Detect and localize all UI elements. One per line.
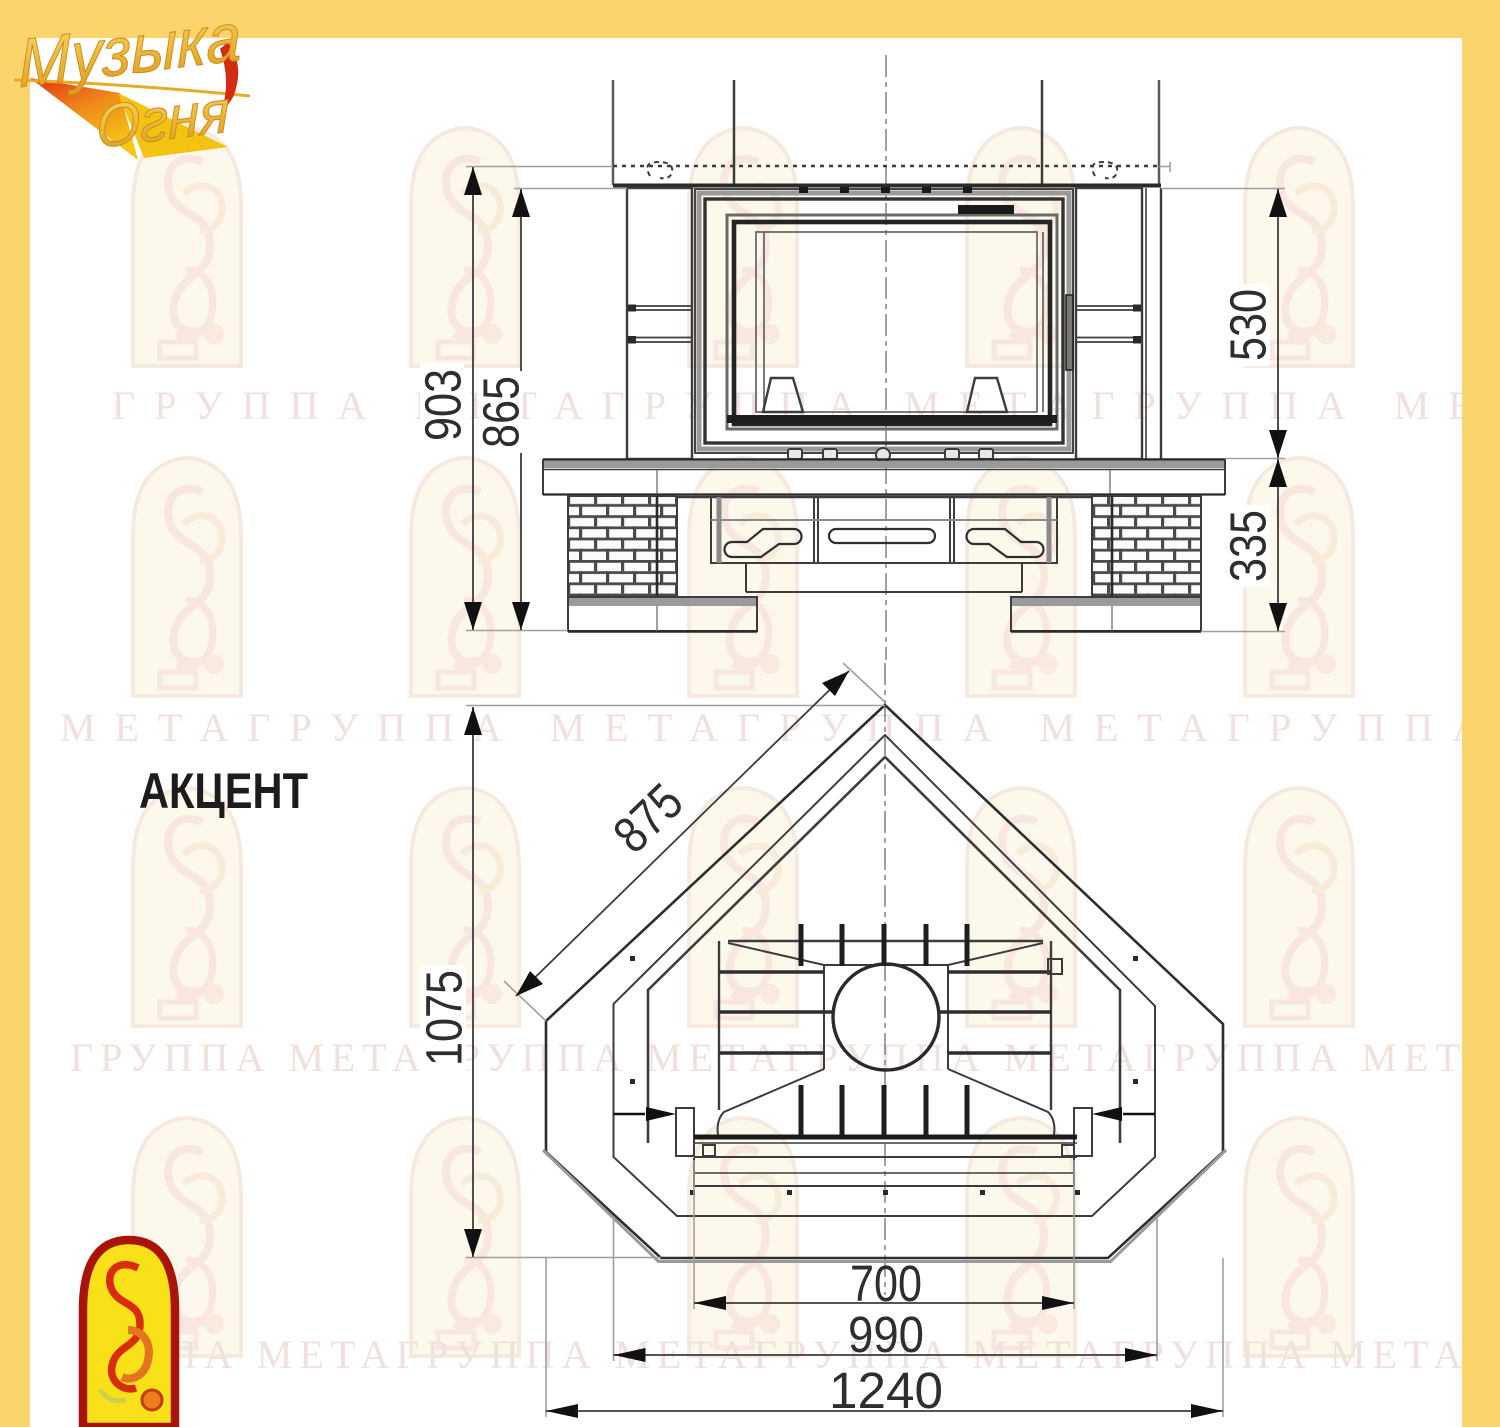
svg-text:МЕТАГРУППА МЕТАГРУППА МЕТАГРУП: МЕТАГРУППА МЕТАГРУППА МЕТАГРУППА [60,705,1500,750]
svg-text:903: 903 [415,369,472,441]
svg-text:700: 700 [850,1255,922,1312]
svg-text:865: 865 [473,376,530,448]
svg-text:1075: 1075 [416,970,473,1066]
svg-text:530: 530 [1220,289,1277,361]
svg-text:335: 335 [1220,510,1277,582]
svg-text:ГРУППА МЕТАГРУППА МЕТАГРУППА М: ГРУППА МЕТАГРУППА МЕТАГРУППА МЕТАГРУППА … [70,1035,1500,1080]
svg-text:990: 990 [848,1306,924,1363]
svg-text:1240: 1240 [829,1362,943,1419]
svg-text:АКЦЕНТ: АКЦЕНТ [139,763,308,819]
